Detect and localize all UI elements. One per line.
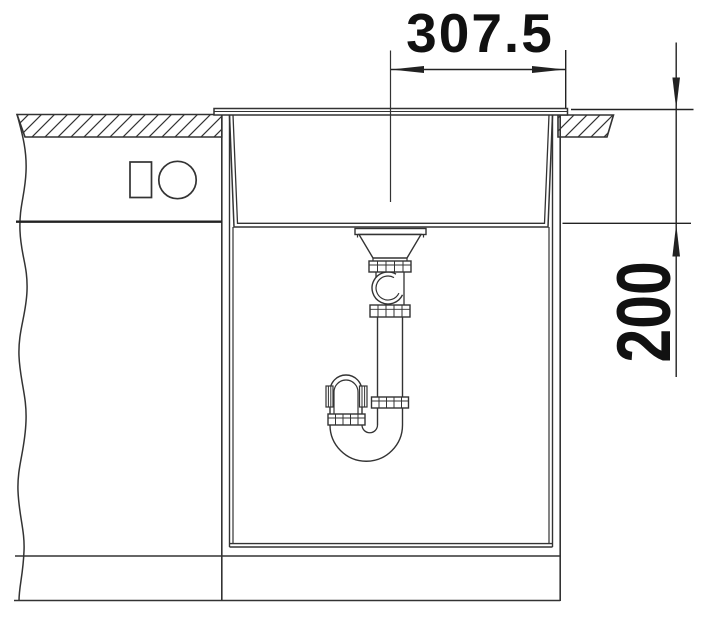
coupling-nut-4 <box>328 414 365 425</box>
coupling-nut-2 <box>370 305 410 317</box>
coupling-nut-1 <box>369 261 411 272</box>
socket-circle-symbol <box>159 161 196 198</box>
arrow-up-icon <box>672 224 680 257</box>
stub-side-fitting-left <box>326 386 333 407</box>
width-dimension-label: 307.5 <box>385 6 575 61</box>
drain-flange <box>355 229 426 235</box>
countertop-right <box>558 115 614 137</box>
coupling-nut-3 <box>372 397 409 408</box>
arrow-right-icon <box>532 66 565 73</box>
back-panel <box>16 161 222 221</box>
plinth-base <box>14 556 560 601</box>
drain-funnel <box>359 235 421 259</box>
arrow-down-icon <box>672 78 680 110</box>
arrow-left-icon <box>391 66 424 73</box>
depth-dimension-label: 200 <box>603 263 687 362</box>
wall-break-line <box>17 114 27 601</box>
drain-trap <box>326 229 426 462</box>
technical-drawing: 307.5 200 <box>0 0 701 620</box>
stub-side-fitting-right <box>360 386 368 407</box>
trap-loop <box>372 272 402 304</box>
drawing-canvas <box>0 0 701 620</box>
trap-stub <box>330 375 362 416</box>
socket-rect-symbol <box>130 162 152 198</box>
countertop-left <box>17 115 222 138</box>
